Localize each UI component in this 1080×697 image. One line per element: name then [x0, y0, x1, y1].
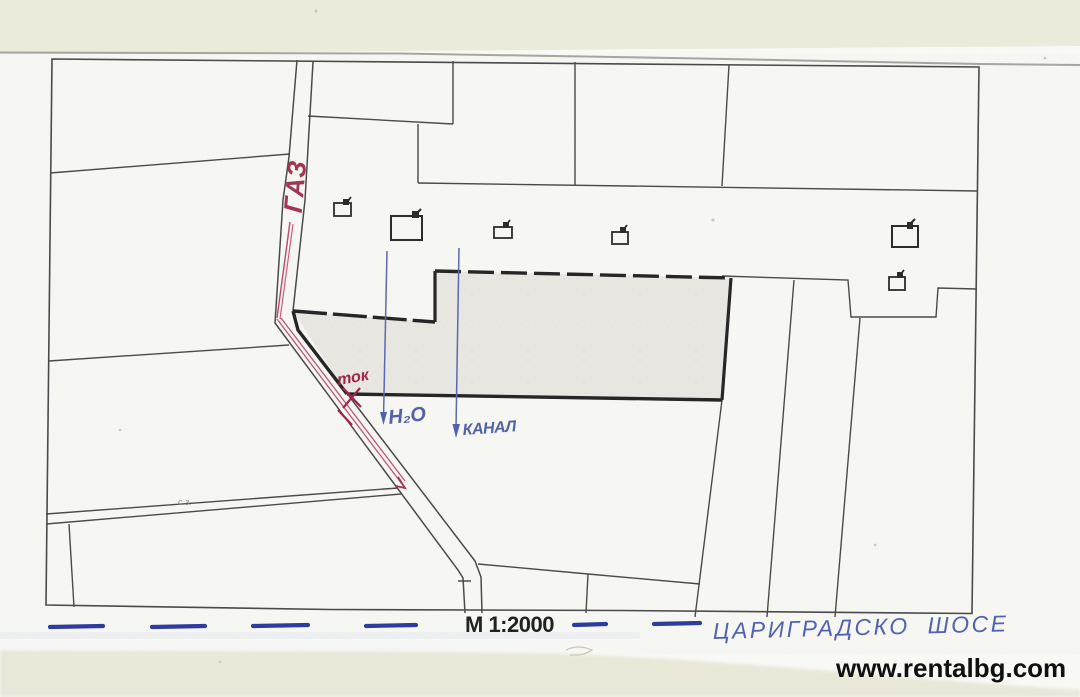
- svg-text:М 1:2000: М 1:2000: [465, 612, 554, 637]
- svg-text:с.з.: с.з.: [178, 497, 192, 507]
- svg-text:www.rentalbg.com: www.rentalbg.com: [835, 653, 1066, 683]
- svg-text:H₂O: H₂O: [387, 403, 427, 429]
- svg-text:ГАЗ: ГАЗ: [278, 158, 313, 214]
